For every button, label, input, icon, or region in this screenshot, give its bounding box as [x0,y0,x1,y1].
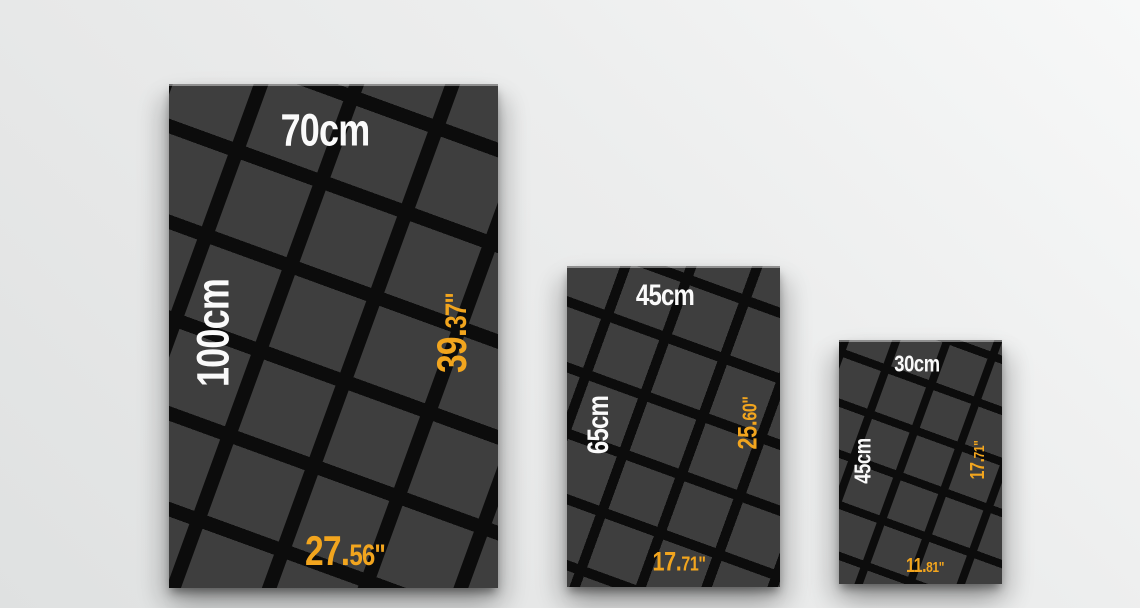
poster-small-width-inches-main: 11. [906,555,926,577]
poster-small-height-inches-sub: 71" [971,441,988,459]
poster-medium-width-inches-label: 17.71" [652,549,705,576]
poster-small-width-cm-label: 30cm [895,353,940,376]
poster-medium-width-cm-label: 45cm [636,281,694,311]
poster-small-height-inches-main: 17. [967,458,989,479]
poster-large-width-inches-label: 27.56" [305,530,385,572]
poster-medium-height-inches-label: 25.60" [735,396,762,449]
poster-medium-height-inches-sub: 60" [740,396,762,420]
poster-medium-height-cm-label: 65cm [584,396,614,454]
poster-small-width-inches-sub: 81" [927,559,945,576]
poster-large-width-inches-main: 27. [305,527,349,574]
poster-large-height-inches-main: 39. [428,329,475,373]
poster-large-width-inches-sub: 56" [349,539,385,572]
poster-small: 30cm 45cm 17.71" 11.81" [839,340,1002,584]
poster-small-height-inches-label: 17.71" [968,441,988,480]
poster-large-height-inches-label: 39.37" [431,293,473,373]
poster-medium-height-inches-main: 25. [733,421,763,450]
poster-medium: 45cm 65cm 25.60" 17.71" [567,266,780,587]
poster-large-height-inches-sub: 37" [440,293,473,329]
poster-large: 70cm 100cm 39.37" 27.56" [169,84,498,588]
wall-background: 70cm 100cm 39.37" 27.56" 45cm 65cm 25.60… [0,0,1140,608]
poster-large-width-cm-label: 70cm [281,108,370,153]
poster-medium-width-inches-main: 17. [652,547,681,577]
poster-large-height-cm-label: 100cm [191,279,236,387]
poster-medium-width-inches-sub: 71" [681,554,705,576]
poster-small-height-cm-label: 45cm [852,438,875,483]
poster-small-width-inches-label: 11.81" [906,556,944,576]
